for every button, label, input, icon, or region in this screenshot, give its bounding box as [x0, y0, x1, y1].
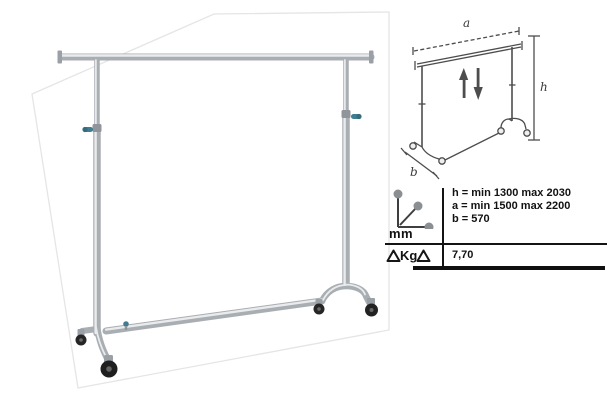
weight-unit-label: Kg — [400, 248, 417, 263]
weight-icon: Kg — [386, 246, 431, 263]
casters — [76, 298, 379, 378]
spec-width-range: a = min 1500 max 2200 — [452, 200, 571, 213]
garment-rack-photo — [58, 51, 379, 378]
dimension-spec-list: h = min 1300 max 2030 a = min 1500 max 2… — [452, 187, 571, 226]
spec-vertical-divider — [442, 188, 444, 267]
h-dimension-line — [528, 36, 540, 140]
weight-triangle-right — [416, 248, 431, 263]
rail-end-cap-left — [58, 51, 63, 64]
weight-triangle-left — [386, 248, 401, 263]
rack-tube-highlights — [62, 56, 371, 357]
spec-horizontal-divider — [385, 243, 607, 245]
diagram-label-b: b — [410, 165, 418, 179]
catalog-product-page: a h b mm h = min 1300 max 2030 a = min 1… — [0, 0, 607, 407]
dimension-diagram: a h b — [401, 16, 548, 179]
b-dimension-line — [401, 148, 439, 179]
height-clamp-right — [342, 110, 351, 118]
spec-height-range: h = min 1300 max 2030 — [452, 187, 571, 200]
dimensions-unit-label: mm — [389, 226, 413, 241]
rail-end-cap-right — [369, 51, 374, 64]
diagram-label-h: h — [540, 80, 548, 94]
adjustment-screws — [82, 114, 361, 330]
diagram-label-a: a — [463, 16, 470, 30]
height-clamp-left — [93, 124, 102, 132]
rack-tubes — [62, 57, 371, 358]
height-adjust-arrows — [459, 68, 483, 100]
spec-depth: b = 570 — [452, 213, 571, 226]
weight-value: 7,70 — [452, 249, 473, 261]
dimensions-axes-icon — [390, 187, 442, 229]
spec-bottom-bar — [413, 266, 605, 270]
